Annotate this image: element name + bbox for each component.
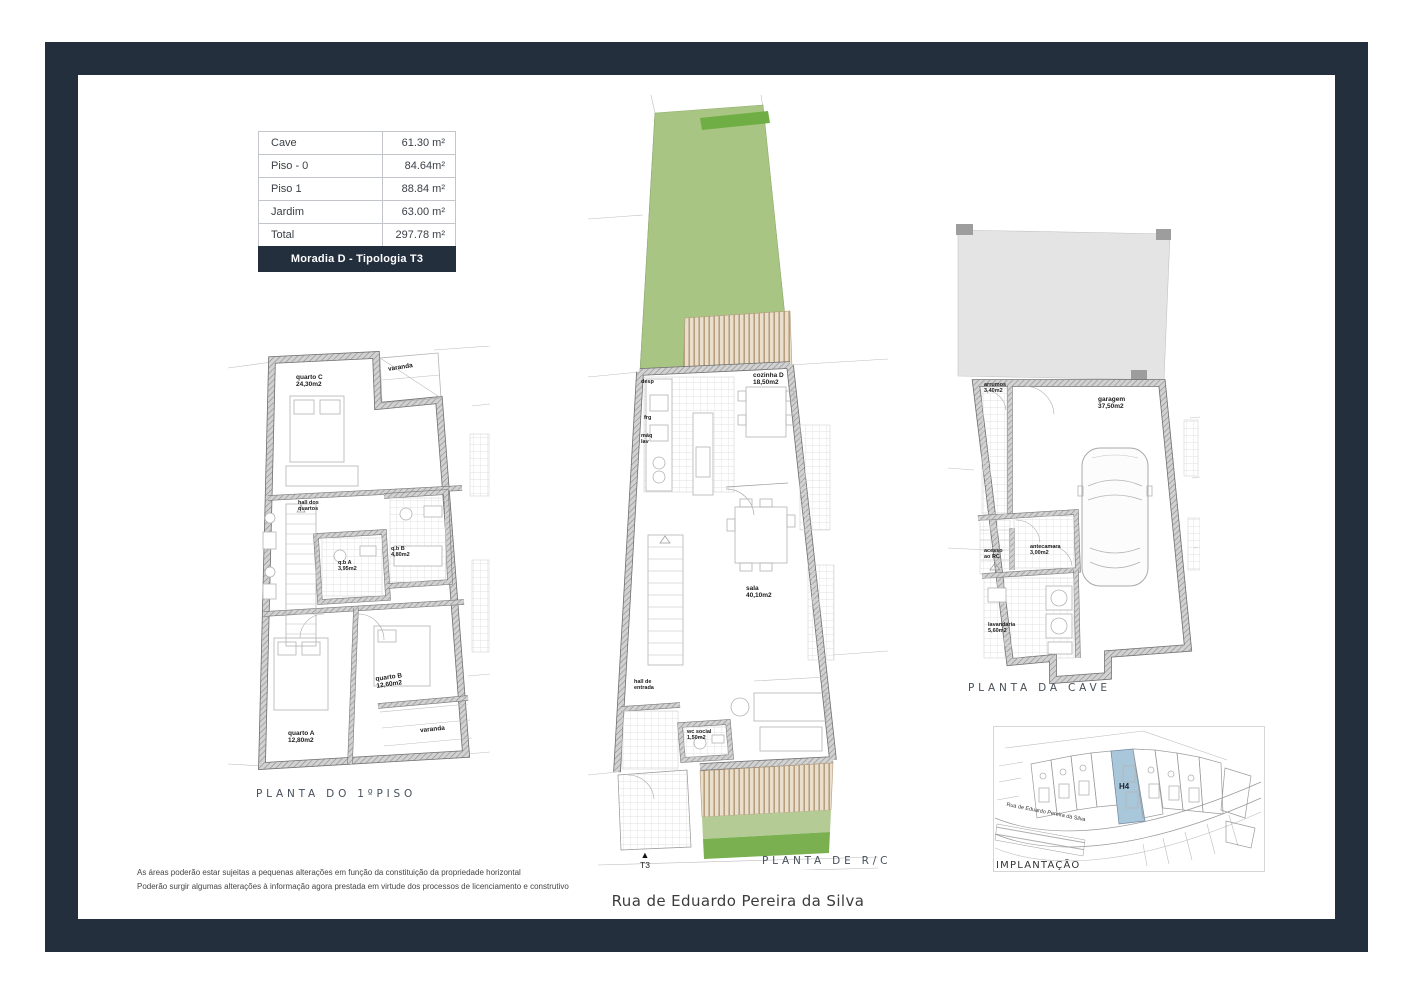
row-label: Total <box>259 224 383 246</box>
car <box>1078 448 1152 586</box>
basement-plan-title: PLANTA DA CAVE <box>968 682 1111 694</box>
table-row: Cave 61.30 m² <box>258 131 456 154</box>
kitchen <box>644 377 794 515</box>
garden <box>640 105 792 372</box>
access-stairs <box>980 520 1010 574</box>
highlighted-lot-label: H4 <box>1119 782 1129 791</box>
table-row: Piso 1 88.84 m² <box>258 177 456 200</box>
room-label-frg: frg <box>644 415 651 421</box>
table-header: Moradia D - Tipologia T3 <box>258 246 456 272</box>
room-label-wc-social: wc social 1,50m2 <box>687 729 711 742</box>
street-name: Rua de Eduardo Pereira da Silva <box>588 892 888 910</box>
entry-court <box>618 770 691 850</box>
room-label-garagem: garagem 37,50m2 <box>1098 396 1125 411</box>
site-plan-drawing <box>993 726 1265 872</box>
site-plan: H4 Rua de Eduardo Pereira da Silva <box>993 726 1265 872</box>
room-label-quarto-c: quarto C 24,30m2 <box>296 374 323 389</box>
room-label-antecamara: antecamara 3,00m2 <box>1030 544 1061 557</box>
ground-floor-plan-title: PLANTA DE R/C <box>762 855 891 867</box>
room-label-cozinha: cozinha D 18,50m2 <box>753 372 784 387</box>
hall <box>622 711 678 769</box>
basement-plan-drawing <box>948 218 1200 688</box>
row-value: 88.84 m² <box>383 178 455 200</box>
row-value: 61.30 m² <box>383 132 455 154</box>
ground-floor-plan: desp frg máq lav cozinha D 18,50m2 sala … <box>588 95 888 870</box>
arrumos-corridor <box>982 388 1007 514</box>
disclaimer: As áreas poderão estar sujeitas a pequen… <box>137 866 569 893</box>
stairs <box>286 504 316 646</box>
row-value: 297.78 m² <box>383 224 455 246</box>
room-label-quarto-a: quarto A 12,80m2 <box>288 730 314 745</box>
floor-plan-sheet: { "page": { "frame_color": "#232f3d", "b… <box>0 0 1414 1000</box>
room-label-arrumos: arrumos 3,40m2 <box>984 382 1006 395</box>
first-floor-plan-drawing <box>228 346 490 808</box>
row-value: 63.00 m² <box>383 201 455 223</box>
table-row: Jardim 63.00 m² <box>258 200 456 223</box>
t3-label: T3 <box>640 860 650 870</box>
room-label-maq-lav: máq lav <box>641 433 652 446</box>
room-label-qb-a: q.b A 3,95m2 <box>338 560 357 573</box>
row-label: Piso - 0 <box>259 155 383 177</box>
disclaimer-line-1: As áreas poderão estar sujeitas a pequen… <box>137 866 569 880</box>
row-label: Jardim <box>259 201 383 223</box>
room-label-qb-b: q.b B 4,80m2 <box>391 546 410 559</box>
row-label: Piso 1 <box>259 178 383 200</box>
front-deck <box>700 763 833 859</box>
basement-plan: arrumos 3,40m2 garagem 37,50m2 acesso ao… <box>948 218 1200 688</box>
room-label-desp: desp <box>641 379 654 385</box>
room-label-hall-quartos: hall dos quartos <box>298 500 319 513</box>
antecamara <box>1014 516 1074 568</box>
neighbor-block <box>956 224 1171 381</box>
ground-floor-plan-drawing <box>588 95 888 870</box>
t3-marker: ▲ T3 <box>634 851 656 870</box>
room-label-sala: sala 40,10m2 <box>746 585 772 600</box>
row-value: 84.64m² <box>383 155 455 177</box>
disclaimer-line-2: Poderão surgir algumas alterações à info… <box>137 880 569 894</box>
row-label: Cave <box>259 132 383 154</box>
room-label-acesso: acesso ao RC <box>984 548 1003 561</box>
table-row: Total 297.78 m² <box>258 223 456 246</box>
balcony-top <box>380 353 441 403</box>
first-floor-plan: quarto C 24,30m2 varanda hall dos quarto… <box>228 346 490 808</box>
balcony-bottom <box>380 704 472 746</box>
room-label-lavandaria: lavandaria 5,60m2 <box>988 622 1015 635</box>
room-label-hall-entrada: hall de entrada <box>634 679 654 692</box>
first-floor-plan-title: PLANTA DO 1ºPISO <box>256 788 416 800</box>
site-plan-title: IMPLANTAÇÃO <box>996 860 1080 871</box>
lavandaria <box>984 578 1074 658</box>
area-table: Cave 61.30 m² Piso - 0 84.64m² Piso 1 88… <box>258 131 456 272</box>
table-row: Piso - 0 84.64m² <box>258 154 456 177</box>
